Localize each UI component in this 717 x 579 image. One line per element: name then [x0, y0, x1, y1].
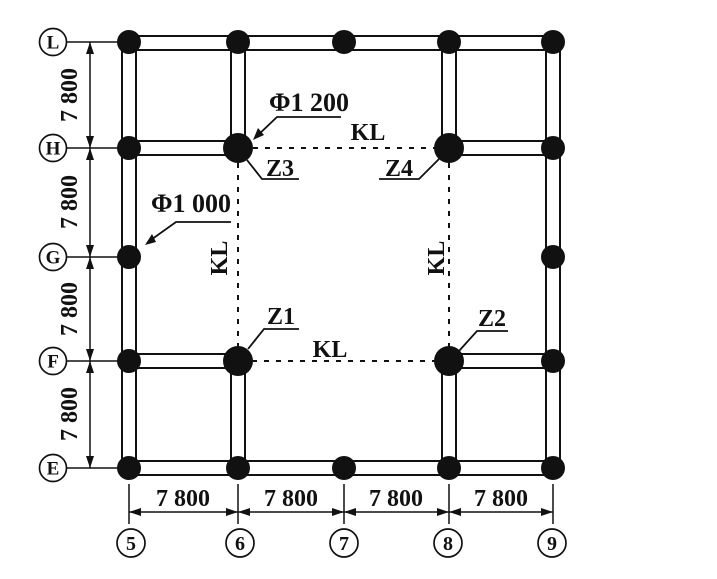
phi-1000-label: Φ1 000 [151, 189, 231, 218]
col-bubble-label: 6 [235, 533, 245, 555]
col-axis-bubbles: 5 6 7 8 9 [117, 529, 566, 557]
column-dot [437, 456, 461, 480]
col-bubble-label: 8 [443, 533, 453, 555]
plan-drawing: L H G F E 5 6 7 8 9 7 800 7 800 7 800 7 … [0, 0, 717, 579]
column-dot [117, 349, 141, 373]
row-bubble-label: E [47, 459, 60, 480]
column-dot [541, 136, 565, 160]
column-dot [332, 30, 356, 54]
column-layout-plan: L H G F E 5 6 7 8 9 7 800 7 800 7 800 7 … [0, 0, 717, 579]
column-dot [332, 456, 356, 480]
z3-label: Z3 [266, 156, 294, 182]
col-bubble-label: 5 [126, 533, 136, 555]
row-bubble-label: G [46, 248, 61, 269]
dim-text-vertical: 7 800 [57, 387, 83, 441]
col-bubble-label: 7 [339, 533, 349, 555]
leader-z1 [248, 329, 299, 349]
column-phi1000-dot [117, 245, 141, 269]
row-bubble-label: H [46, 139, 61, 160]
horizontal-dimension-texts: 7 800 7 800 7 800 7 800 [156, 486, 528, 512]
kl-label-right: KL [424, 241, 450, 276]
kl-label-bottom: KL [313, 337, 348, 363]
column-dot [437, 30, 461, 54]
column-z4-dot [434, 133, 464, 163]
z4-label: Z4 [385, 156, 413, 182]
column-dot [117, 30, 141, 54]
dim-text-horizontal: 7 800 [369, 486, 423, 512]
dim-text-horizontal: 7 800 [156, 486, 210, 512]
annotation-labels: Φ1 200 Φ1 000 KL KL KL KL Z3 Z4 Z1 Z2 [151, 88, 506, 363]
column-z3-dot [223, 133, 253, 163]
column-dot [117, 456, 141, 480]
column-z1-dot [223, 346, 253, 376]
column-dot [226, 30, 250, 54]
column-z2-dot [434, 346, 464, 376]
dim-text-horizontal: 7 800 [474, 486, 528, 512]
leader-phi-1200 [256, 117, 341, 137]
dim-text-vertical: 7 800 [57, 68, 83, 122]
kl-label-top: KL [351, 120, 386, 146]
z1-label: Z1 [267, 304, 295, 330]
dim-text-vertical: 7 800 [57, 175, 83, 229]
column-dot [541, 30, 565, 54]
z2-label: Z2 [478, 306, 506, 332]
row-bubble-label: L [47, 33, 60, 54]
column-dot [541, 456, 565, 480]
column-dot [117, 136, 141, 160]
row-bubble-label: F [47, 352, 59, 373]
dim-text-vertical: 7 800 [57, 282, 83, 336]
leader-z2 [459, 331, 508, 351]
column-dot [541, 349, 565, 373]
column-dot [541, 245, 565, 269]
kl-label-left: KL [207, 241, 233, 276]
leader-phi-1000 [148, 222, 231, 242]
dim-text-horizontal: 7 800 [264, 486, 318, 512]
col-bubble-label: 9 [547, 533, 557, 555]
phi-1200-label: Φ1 200 [269, 88, 349, 117]
column-dot [226, 456, 250, 480]
